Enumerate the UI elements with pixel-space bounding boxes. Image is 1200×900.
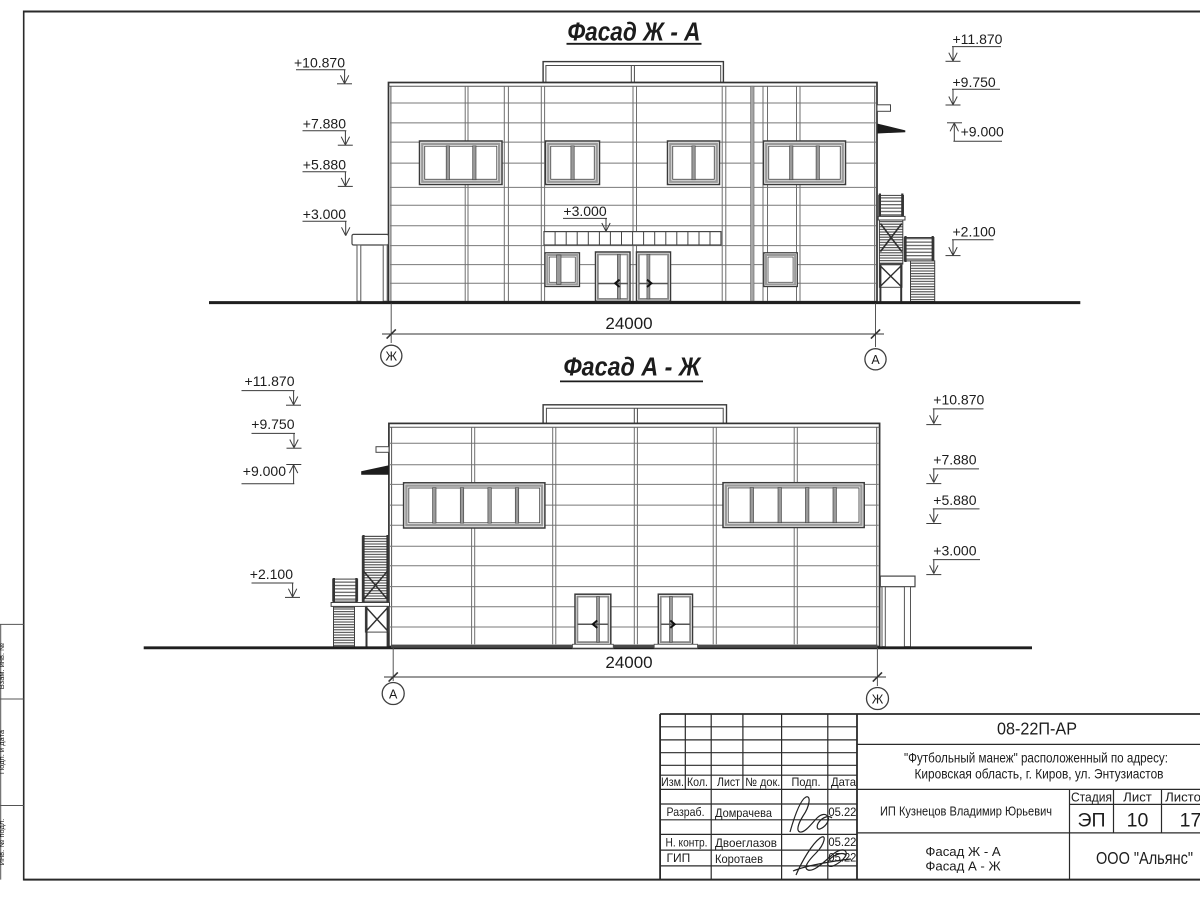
svg-text:ГИП: ГИП — [667, 851, 691, 865]
svg-text:"Футбольный манеж" расположенн: "Футбольный манеж" расположенный по адре… — [904, 751, 1168, 766]
svg-text:Стадия: Стадия — [1071, 790, 1112, 805]
svg-text:08-22П-АР: 08-22П-АР — [997, 719, 1077, 739]
svg-text:Фасад Ж - А: Фасад Ж - А — [568, 19, 701, 47]
svg-text:Ж: Ж — [872, 692, 884, 706]
svg-text:+2.100: +2.100 — [953, 224, 996, 240]
svg-text:05.22: 05.22 — [828, 805, 856, 819]
svg-text:+5.880: +5.880 — [303, 156, 346, 172]
svg-text:17: 17 — [1180, 810, 1200, 832]
svg-text:+11.870: +11.870 — [953, 31, 1003, 47]
svg-text:+3.000: +3.000 — [303, 206, 346, 222]
svg-text:Подп. и дата: Подп. и дата — [0, 729, 6, 774]
svg-text:№ док.: № док. — [745, 775, 780, 789]
svg-text:24000: 24000 — [605, 653, 652, 672]
svg-text:Н. контр.: Н. контр. — [666, 836, 708, 850]
svg-text:Коротаев: Коротаев — [715, 852, 763, 866]
svg-text:+10.870: +10.870 — [933, 392, 984, 408]
svg-text:+10.870: +10.870 — [294, 54, 345, 70]
svg-text:Фасад Ж - А: Фасад Ж - А — [925, 844, 1001, 859]
svg-text:А: А — [389, 687, 398, 701]
svg-text:Взам. инв. №: Взам. инв. № — [0, 643, 6, 689]
svg-text:ЭП: ЭП — [1077, 810, 1105, 832]
svg-text:Лист: Лист — [717, 775, 740, 789]
svg-text:+5.880: +5.880 — [933, 492, 976, 508]
svg-text:Разраб.: Разраб. — [667, 805, 705, 819]
svg-text:+3.000: +3.000 — [933, 543, 976, 559]
svg-text:05.22: 05.22 — [828, 835, 856, 849]
svg-text:Изм.: Изм. — [661, 775, 684, 789]
svg-text:Инв. № подл.: Инв. № подл. — [0, 819, 6, 866]
svg-text:10: 10 — [1127, 810, 1149, 832]
svg-text:24000: 24000 — [605, 314, 652, 333]
svg-text:+11.870: +11.870 — [245, 373, 295, 389]
svg-text:ИП Кузнецов Владимир Юрьевич: ИП Кузнецов Владимир Юрьевич — [880, 804, 1052, 819]
svg-text:Ж: Ж — [386, 350, 398, 364]
svg-text:Фасад А - Ж: Фасад А - Ж — [925, 858, 1000, 873]
svg-text:+7.880: +7.880 — [933, 452, 976, 468]
svg-text:+9.000: +9.000 — [961, 124, 1004, 140]
svg-text:Кировская область, г. Киров, у: Кировская область, г. Киров, ул. Энтузиа… — [915, 766, 1164, 781]
svg-text:Лист: Лист — [1123, 790, 1152, 805]
svg-text:Фасад А - Ж: Фасад А - Ж — [564, 354, 702, 382]
svg-text:+9.750: +9.750 — [251, 416, 294, 432]
svg-text:+7.880: +7.880 — [303, 115, 346, 131]
svg-text:Листов: Листов — [1165, 790, 1200, 805]
svg-text:Дата: Дата — [831, 775, 856, 789]
svg-text:+9.750: +9.750 — [953, 74, 996, 90]
svg-text:Подп.: Подп. — [792, 775, 821, 789]
svg-text:ООО "Альянс": ООО "Альянс" — [1096, 848, 1193, 868]
svg-text:А: А — [871, 353, 880, 367]
svg-text:Кол.: Кол. — [687, 775, 708, 789]
svg-text:+2.100: +2.100 — [250, 566, 293, 582]
svg-text:Двоеглазов: Двоеглазов — [715, 836, 777, 850]
svg-text:+3.000: +3.000 — [563, 203, 606, 219]
svg-text:+9.000: +9.000 — [243, 463, 286, 479]
svg-text:Домрачева: Домрачева — [715, 806, 772, 820]
